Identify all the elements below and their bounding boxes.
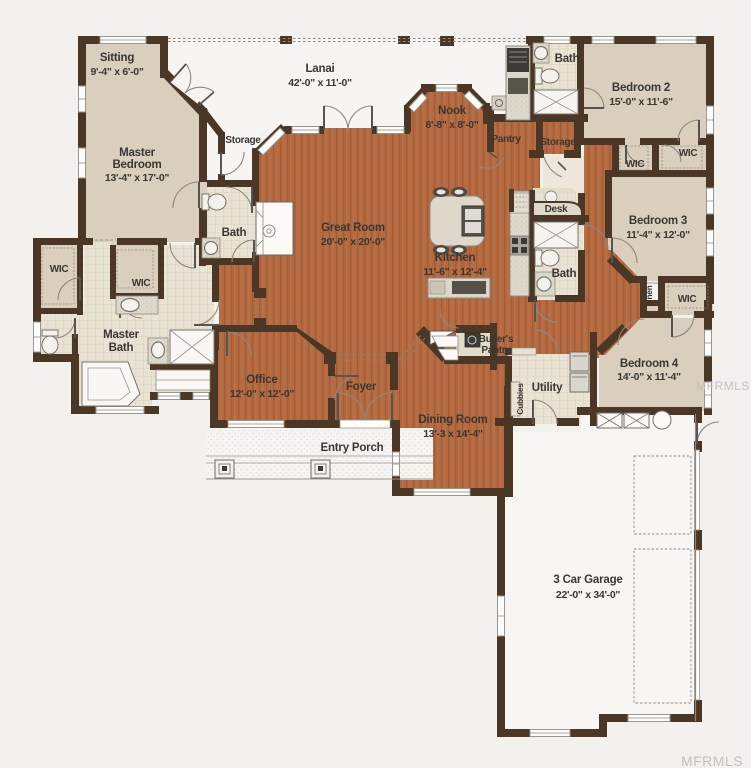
svg-text:Lanai: Lanai xyxy=(305,63,334,75)
svg-text:Storage: Storage xyxy=(225,135,261,146)
svg-text:MFRMLS: MFRMLS xyxy=(681,753,743,768)
svg-text:Great Room: Great Room xyxy=(321,222,385,234)
svg-text:MFRMLS: MFRMLS xyxy=(696,379,750,393)
svg-text:Pantry: Pantry xyxy=(491,134,521,145)
svg-text:Desk: Desk xyxy=(545,204,568,215)
svg-text:Bedroom 2: Bedroom 2 xyxy=(612,82,670,94)
svg-text:Utility: Utility xyxy=(532,382,563,394)
svg-text:WIC: WIC xyxy=(132,278,151,289)
svg-text:WIC: WIC xyxy=(678,294,697,305)
svg-text:Storage: Storage xyxy=(540,137,576,148)
svg-text:Sitting: Sitting xyxy=(100,52,135,64)
svg-text:Bath: Bath xyxy=(109,342,134,354)
svg-text:Pantry: Pantry xyxy=(481,345,511,356)
svg-text:15'-0" x 11'-6": 15'-0" x 11'-6" xyxy=(609,96,673,108)
svg-text:Foyer: Foyer xyxy=(346,381,377,393)
svg-text:Kitchen: Kitchen xyxy=(435,252,476,264)
svg-text:WIC: WIC xyxy=(50,264,69,275)
svg-text:12'-0" x 12'-0": 12'-0" x 12'-0" xyxy=(230,388,294,400)
svg-text:Bedroom 4: Bedroom 4 xyxy=(620,358,679,370)
svg-text:3 Car Garage: 3 Car Garage xyxy=(553,574,622,586)
svg-text:13'-3 x 14'-4": 13'-3 x 14'-4" xyxy=(423,428,483,440)
svg-text:Linen: Linen xyxy=(644,285,654,306)
svg-text:Entry Porch: Entry Porch xyxy=(321,442,384,454)
svg-text:Dining Room: Dining Room xyxy=(418,414,487,426)
svg-text:Bath: Bath xyxy=(552,268,577,280)
svg-text:WIC: WIC xyxy=(626,159,645,170)
svg-text:20'-0" x 20'-0": 20'-0" x 20'-0" xyxy=(321,236,385,248)
svg-text:Master: Master xyxy=(119,147,156,159)
svg-text:13'-4" x 17'-0": 13'-4" x 17'-0" xyxy=(105,172,169,184)
svg-text:Butler's: Butler's xyxy=(479,334,514,345)
svg-text:9'-4" x 6'-0": 9'-4" x 6'-0" xyxy=(90,66,143,78)
svg-text:Bath: Bath xyxy=(555,53,580,65)
svg-text:Bedroom 3: Bedroom 3 xyxy=(629,215,687,227)
svg-text:Office: Office xyxy=(246,374,277,386)
svg-text:Master: Master xyxy=(103,329,140,341)
svg-text:Nook: Nook xyxy=(438,105,467,117)
svg-text:11'-6" x 12'-4": 11'-6" x 12'-4" xyxy=(423,266,487,278)
svg-text:11'-4" x 12'-0": 11'-4" x 12'-0" xyxy=(626,229,690,241)
svg-text:Bath: Bath xyxy=(222,227,247,239)
svg-text:WIC: WIC xyxy=(679,148,698,159)
svg-text:Bedroom: Bedroom xyxy=(112,159,161,171)
svg-text:8'-8" x 8'-0": 8'-8" x 8'-0" xyxy=(425,119,478,131)
svg-text:22'-0" x 34'-0": 22'-0" x 34'-0" xyxy=(556,589,620,601)
svg-text:14'-0" x 11'-4": 14'-0" x 11'-4" xyxy=(617,371,681,383)
svg-text:Cubbies: Cubbies xyxy=(515,383,525,415)
svg-text:42'-0" x 11'-0": 42'-0" x 11'-0" xyxy=(288,77,352,89)
